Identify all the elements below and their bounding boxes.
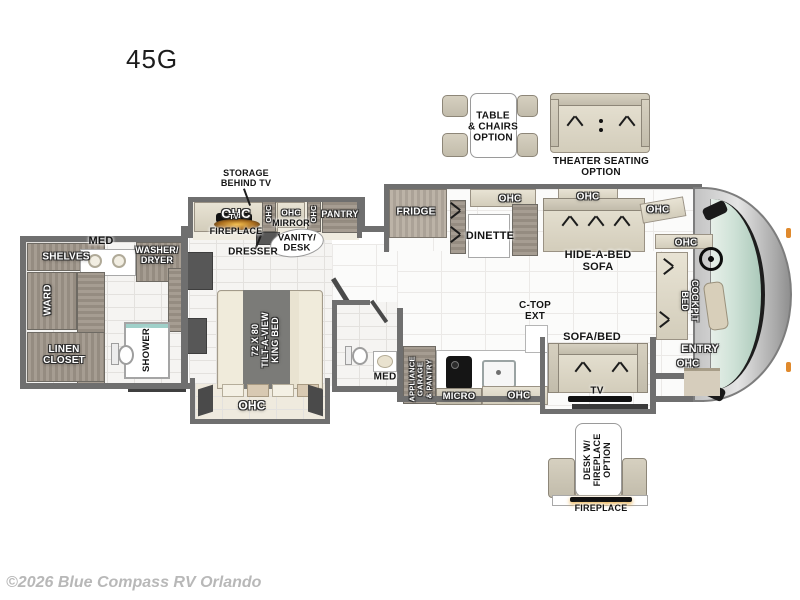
wall-bedroom-slide	[188, 197, 193, 238]
theater-armrest	[641, 99, 650, 147]
seat-stitch-icon	[452, 228, 461, 242]
bath-wall-cabinet	[168, 268, 182, 332]
watermark-text: ©2026 Blue Compass RV Orlando	[6, 574, 261, 592]
wall	[650, 373, 688, 379]
marker-light-icon	[786, 362, 791, 372]
wall-living-slide	[384, 184, 702, 189]
seat-stitch-icon	[576, 362, 590, 371]
label-cockpit-bed: COCKPIT BED	[679, 280, 699, 322]
label-table-chairs-option: TABLE & CHAIRS OPTION	[468, 111, 518, 144]
pillow	[222, 384, 244, 397]
entry-steps	[684, 368, 720, 396]
label-storage-behind-tv: STORAGE BEHIND TV	[221, 169, 271, 189]
seat-stitch-icon	[620, 116, 634, 125]
wall-living-slide	[384, 184, 389, 252]
seat-stitch-icon	[613, 362, 627, 371]
label-ohc: OHC	[647, 205, 670, 216]
wall-half-bath	[332, 300, 370, 305]
label-ohc: OHC	[577, 192, 600, 203]
toilet-bowl	[118, 345, 134, 365]
cooktop-burner	[451, 361, 459, 369]
label-pantry: PANTRY	[321, 210, 358, 220]
faucet-icon	[496, 370, 501, 375]
label-appliance-garage: APPLIANCE GARAGE & PANTRY	[409, 356, 434, 401]
pillow	[247, 384, 269, 397]
bedroom-wardrobe	[187, 252, 213, 290]
label-washer-dryer: WASHER/ DRYER	[135, 246, 178, 266]
fireplace-insert	[570, 497, 632, 502]
wall-bed-slide	[190, 378, 195, 424]
label-ohc: OHC	[499, 194, 522, 205]
label-fireplace-option: FIREPLACE	[575, 504, 628, 514]
label-shelves: SHELVES	[42, 252, 89, 263]
label-mirror: MIRROR	[272, 219, 310, 229]
label-c-top-ext: C-TOP EXT	[519, 300, 551, 322]
toilet-tank	[345, 346, 352, 365]
option-chair	[442, 133, 468, 157]
label-med: MED	[374, 372, 397, 383]
seat-stitch-icon	[661, 313, 670, 327]
tv-screen	[568, 396, 632, 402]
label-ohc: OHC	[508, 391, 531, 402]
label-linen-closet: LINEN CLOSET	[43, 344, 85, 366]
wall	[332, 386, 403, 392]
sink-bowl	[112, 254, 126, 268]
label-entry: ENTRY	[681, 343, 719, 355]
sofa-backrest	[548, 343, 648, 355]
king-bed-side	[219, 292, 243, 387]
bed-slide-end-panel	[198, 385, 213, 417]
label-king-bed: 72 X 80 TILT-A-VIEW KING BED	[251, 312, 281, 368]
seat-stitch-icon	[452, 204, 461, 218]
steering-wheel-icon	[699, 247, 723, 271]
label-fridge: FRIDGE	[397, 207, 436, 218]
bed-slide-end-panel	[308, 385, 323, 417]
option-chair	[517, 95, 538, 117]
desk-side-panel	[622, 458, 647, 498]
label-micro: MICRO	[443, 392, 476, 402]
wall	[20, 236, 26, 389]
floorplan-page: 45G ©2026 Blue Compass RV Orlando	[0, 0, 800, 600]
option-chair	[517, 133, 538, 157]
label-med: MED	[88, 235, 113, 247]
wall-half-bath	[332, 300, 337, 391]
wall-sofa-slide	[540, 409, 656, 414]
toilet-bowl	[352, 347, 368, 365]
marker-light-icon	[786, 228, 791, 238]
seat-stitch-icon	[665, 260, 674, 274]
label-ohc: OHC	[675, 238, 698, 249]
label-sofa-bed: SOFA/BED	[563, 331, 621, 343]
wall	[20, 383, 192, 389]
seat-stitch-icon	[615, 216, 629, 225]
seat-stitch-icon	[563, 216, 577, 225]
label-desk-fireplace-option: DESK W/ FIREPLACE OPTION	[583, 434, 613, 487]
label-ohc: OHC	[238, 399, 265, 412]
label-dresser: DRESSER	[228, 247, 278, 258]
label-ohc: OHC	[281, 208, 301, 217]
pillow	[272, 384, 294, 397]
label-dinette: DINETTE	[466, 230, 514, 242]
sink-bowl	[88, 254, 102, 268]
theater-armrest	[550, 99, 559, 147]
sink-bowl	[377, 355, 393, 368]
theater-backrest	[550, 93, 650, 106]
label-ohc: OHC	[677, 359, 700, 370]
wall-bed-slide	[190, 419, 330, 424]
console-dot-icon	[599, 119, 603, 123]
wall-bed-slide	[325, 378, 330, 424]
label-ohc: OHC	[310, 205, 318, 222]
seat-stitch-icon	[568, 116, 582, 125]
label-theater-seating-option: THEATER SEATING OPTION	[553, 156, 649, 178]
dinette-bench	[512, 204, 538, 256]
label-vanity-desk: VANITY/ DESK	[278, 234, 316, 255]
cooktop	[446, 356, 472, 390]
seat-stitch-icon	[589, 216, 603, 225]
desk-side-panel	[548, 458, 575, 498]
label-tv: TV	[229, 214, 238, 222]
sofa-armrest	[548, 343, 559, 393]
option-chair	[442, 95, 468, 117]
wall-bedroom-slide	[188, 197, 362, 202]
sofa-armrest	[637, 343, 648, 393]
wall-sofa-slide	[540, 337, 545, 414]
console-dot-icon	[599, 128, 603, 132]
label-ward: WARD	[43, 284, 54, 315]
label-fireplace: FIREPLACE	[210, 227, 263, 237]
wall	[181, 226, 188, 389]
label-shower: SHOWER	[142, 328, 152, 372]
model-title: 45G	[126, 44, 178, 75]
label-tv: TV	[590, 386, 603, 397]
king-bed-side	[299, 292, 321, 387]
label-hide-a-bed-sofa: HIDE-A-BED SOFA	[565, 249, 632, 273]
bedroom-wardrobe	[187, 318, 207, 354]
